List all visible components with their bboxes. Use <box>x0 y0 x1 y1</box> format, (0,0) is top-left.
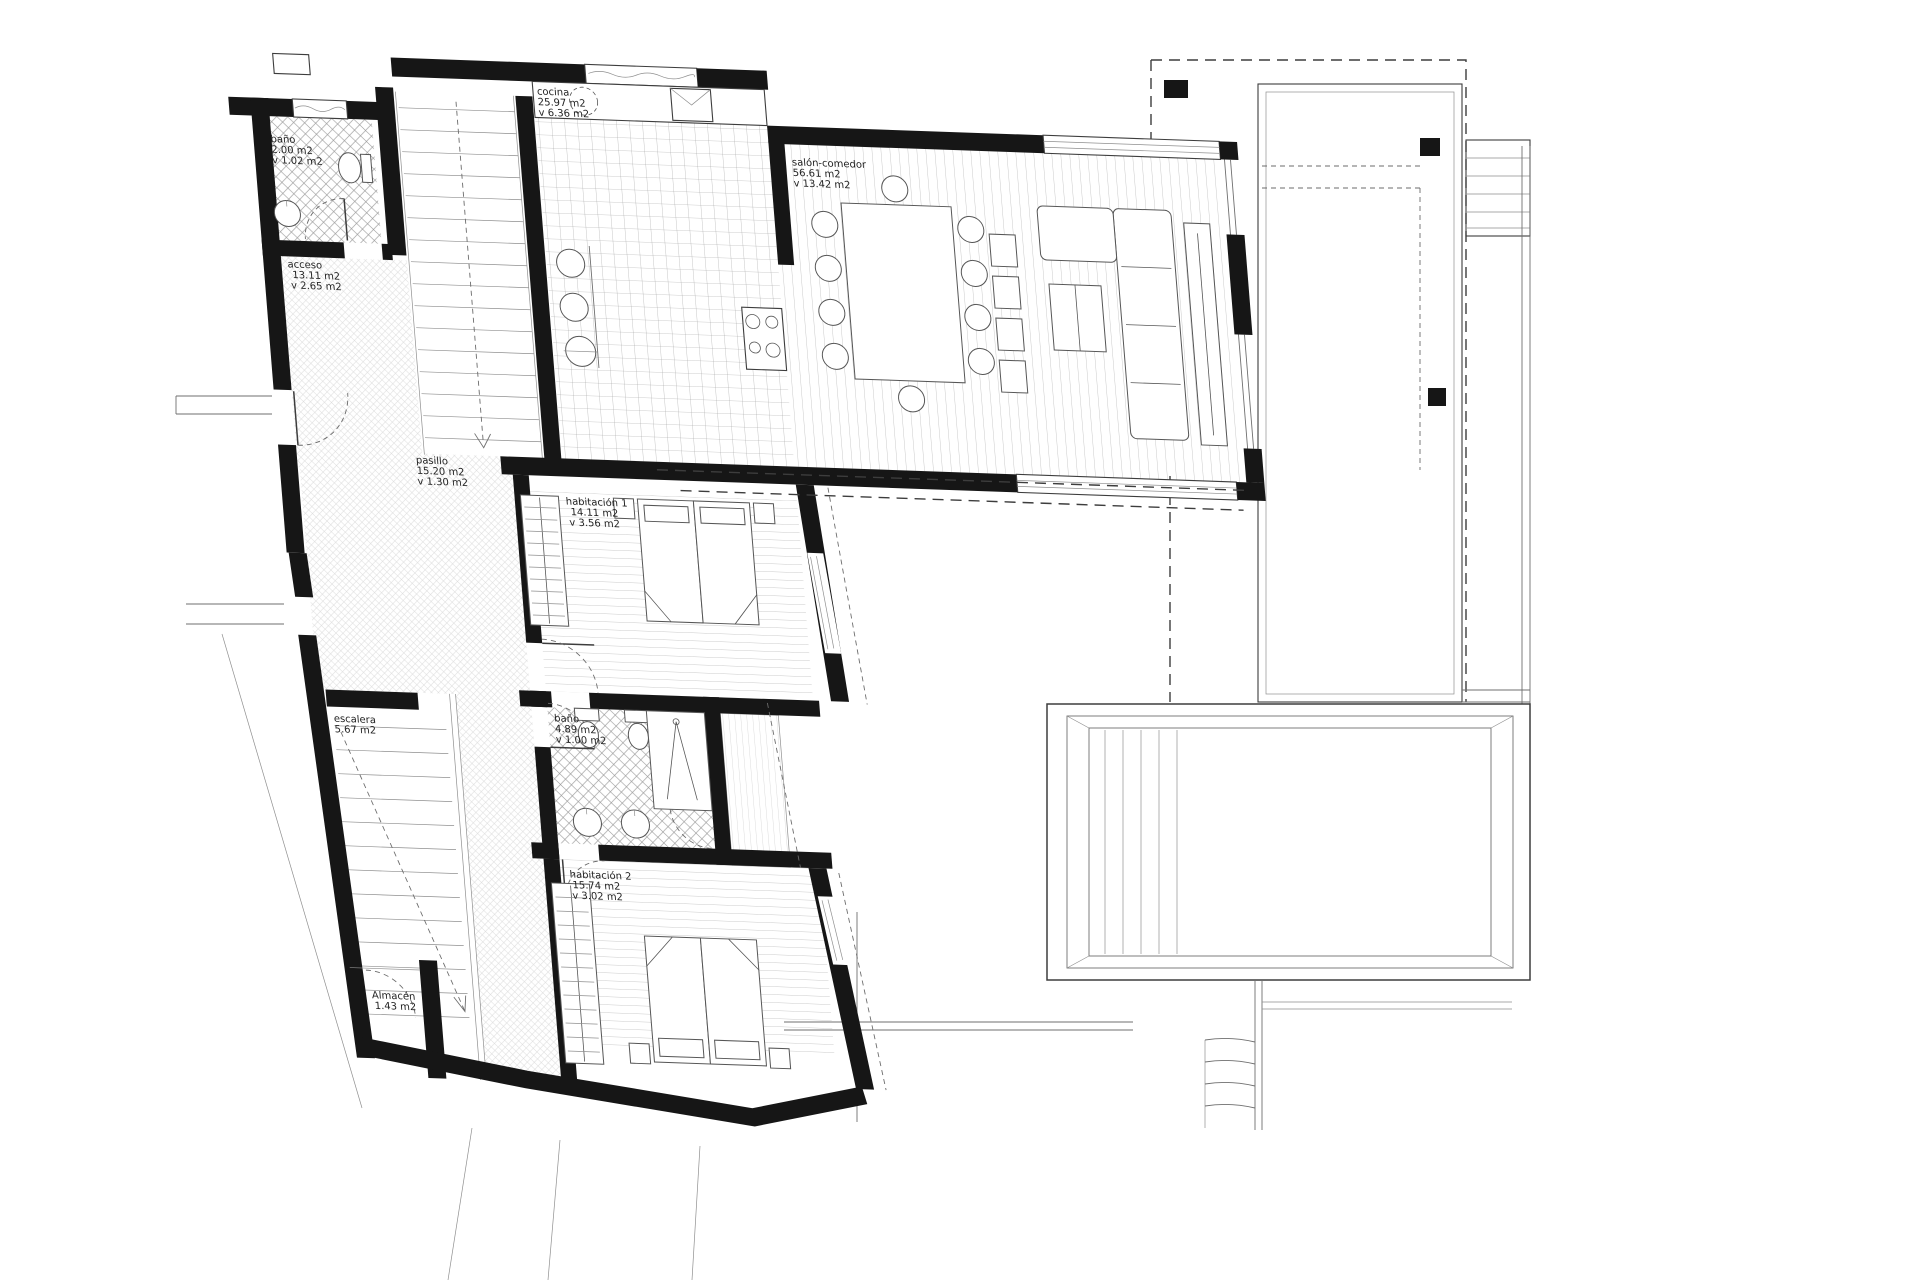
exterior-steps-se <box>1205 1038 1255 1108</box>
window-hab1-east <box>807 553 841 654</box>
terrace-east-inner-line <box>1266 92 1454 694</box>
ground-lines <box>784 912 1512 1130</box>
sofa-short <box>1037 206 1117 263</box>
roof-dashed-horizontals <box>1262 166 1420 188</box>
kitchen-stove <box>742 307 787 370</box>
hab2-nightstand-right <box>769 1048 791 1069</box>
pool-steps <box>1105 730 1177 954</box>
house: baño 2.00 m2 v 1.02 m2 acceso 13.11 m2 v… <box>225 52 1317 1137</box>
label-escalera: escalera 5.67 m2 <box>333 714 380 737</box>
pool-corner-miters <box>1067 716 1513 968</box>
floor-pasillo-upper <box>300 467 531 696</box>
floorplan-canvas: baño 2.00 m2 v 1.02 m2 acceso 13.11 m2 v… <box>0 0 1920 1280</box>
dining-table <box>841 203 965 383</box>
window-north-bano1 <box>292 99 347 119</box>
swimming-pool <box>1047 704 1530 980</box>
south-wall <box>359 1046 867 1122</box>
vent-block <box>273 53 311 74</box>
floor-cocina <box>535 117 794 466</box>
label-almacen: Almacén 1.43 m2 <box>371 989 419 1013</box>
terrace-column-nw <box>1164 80 1188 98</box>
exterior-stair-ne <box>1462 140 1530 704</box>
south-ground-lines <box>448 1128 700 1280</box>
hab2-nightstand-left <box>629 1043 651 1064</box>
floorplan-svg: baño 2.00 m2 v 1.02 m2 acceso 13.11 m2 v… <box>0 0 1920 1280</box>
terrace-column-e <box>1428 388 1446 406</box>
terrace-column-ne <box>1420 138 1440 156</box>
hab1-furniture <box>520 495 783 634</box>
hab1-nightstand-right <box>753 503 775 524</box>
stair-escalera-arrow <box>454 995 467 1011</box>
